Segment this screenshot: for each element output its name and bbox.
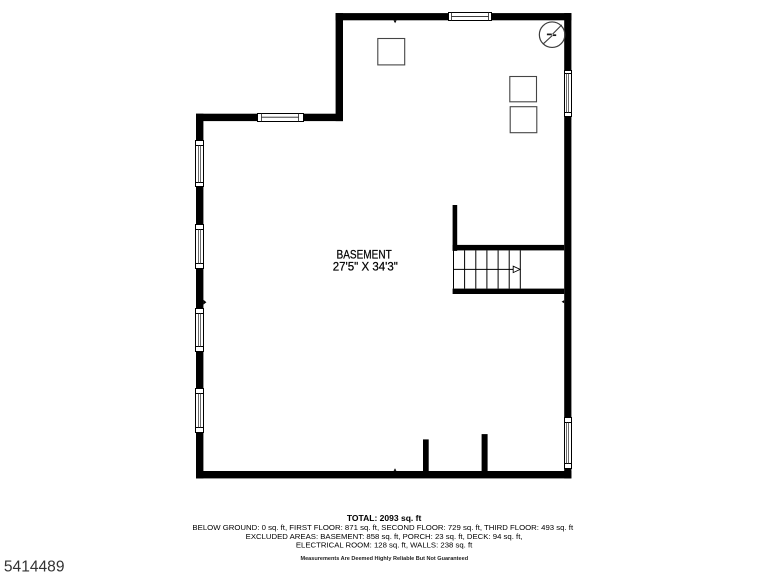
svg-text:5414489: 5414489: [4, 558, 65, 575]
svg-text:EXCLUDED AREAS: BASEMENT: 858: EXCLUDED AREAS: BASEMENT: 858 sq. ft, PO…: [246, 532, 523, 541]
svg-text:TOTAL: 2093 sq. ft: TOTAL: 2093 sq. ft: [347, 514, 422, 523]
svg-text:BASEMENT: BASEMENT: [337, 250, 392, 262]
svg-text:Measurements Are Deemed Highly: Measurements Are Deemed Highly Reliable …: [300, 556, 468, 562]
svg-text:ELECTRICAL ROOM: 128 sq. ft, W: ELECTRICAL ROOM: 128 sq. ft, WALLS: 238 …: [296, 541, 473, 550]
svg-text:BELOW GROUND: 0 sq. ft, FIRST: BELOW GROUND: 0 sq. ft, FIRST FLOOR: 871…: [192, 523, 574, 532]
svg-text:27'5" X 34'3": 27'5" X 34'3": [333, 262, 398, 274]
